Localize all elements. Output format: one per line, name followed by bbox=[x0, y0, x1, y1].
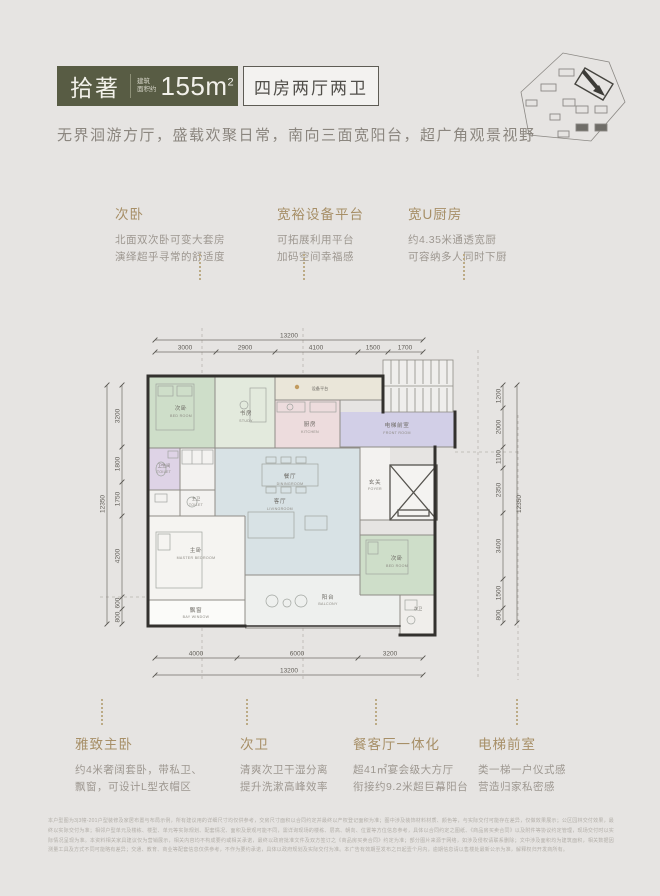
feature-line: 飘窗，可设计L型衣帽区 bbox=[75, 779, 235, 796]
area-superscript: 2 bbox=[228, 76, 235, 88]
dim-right-seg: 2350 bbox=[496, 482, 503, 497]
room-label-bed1-cn: 次卧 bbox=[175, 404, 187, 412]
feature-line: 约4.35米通透宽厨 bbox=[408, 232, 568, 249]
feature-line: 类一梯一户仪式感 bbox=[478, 762, 608, 779]
feature-title: 次卧 bbox=[115, 203, 275, 223]
dim-right-seg: 1100 bbox=[496, 450, 503, 464]
highlighted-building-icon bbox=[575, 68, 613, 100]
room-label-bed1-en: BED ROOM bbox=[170, 414, 192, 418]
dim-right-seg: 3400 bbox=[496, 538, 503, 553]
room-label-study-en: STUDY bbox=[239, 419, 253, 423]
feature-title: 次卫 bbox=[240, 733, 360, 753]
feature-line: 提升洗漱高峰效率 bbox=[240, 779, 360, 796]
feature-title: 电梯前室 bbox=[478, 733, 608, 753]
room-label-bed2-en: BED ROOM bbox=[386, 564, 408, 568]
dim-top-total: 13200 bbox=[280, 333, 298, 340]
site-plan-bold-buildings bbox=[577, 125, 606, 130]
dim-right-total: 12350 bbox=[516, 495, 523, 513]
room-label-study-cn: 书房 bbox=[240, 409, 252, 417]
brand-name: 拾著 bbox=[57, 69, 130, 103]
room-label-balcony-cn: 阳台 bbox=[322, 593, 334, 601]
room-label-toilet1-en: TOILET bbox=[157, 470, 172, 474]
room-label-bay-en: BAY WINDOW bbox=[183, 615, 210, 619]
room-label-master-cn: 主卧 bbox=[190, 546, 202, 554]
dim-left-seg: 1800 bbox=[115, 456, 122, 471]
dotted-connector bbox=[375, 699, 377, 725]
feature-u-kitchen: 宽U厨房 约4.35米通透宽厨 可容纳多人同时下厨 bbox=[408, 203, 568, 266]
dim-top-seg: 1500 bbox=[366, 345, 381, 352]
dim-left-seg: 4200 bbox=[115, 548, 122, 563]
feature-line: 清爽次卫干湿分离 bbox=[240, 762, 360, 779]
room-label-kitchen-en: KITCHEN bbox=[301, 430, 319, 434]
dim-bottom-seg: 6000 bbox=[290, 651, 305, 658]
dotted-connector bbox=[101, 699, 103, 725]
dim-right-seg: 1500 bbox=[496, 585, 503, 600]
room-label-master-en: MASTER BEDROOM bbox=[177, 556, 216, 560]
feature-secondary-bedroom: 次卧 北面双次卧可变大套房 演绎超乎寻常的舒适度 bbox=[115, 203, 275, 266]
dim-right-seg: 800 bbox=[496, 609, 503, 620]
room-label-front-en: FRONT ROOM bbox=[383, 431, 411, 435]
room-label-dining-cn: 餐厅 bbox=[284, 472, 296, 480]
dim-top-seg: 1700 bbox=[398, 345, 413, 352]
room-label-toilet1-cn: 卫生间 bbox=[158, 462, 171, 469]
dim-left-seg: 800 bbox=[115, 611, 122, 622]
dim-left-seg: 600 bbox=[115, 597, 122, 608]
disclaimer-text: 本户型图为3|3幢-201户型装修及家居布置与布局示例，所有建议用的详细尺寸均仅… bbox=[48, 817, 614, 856]
room-label-kitchen-cn: 厨房 bbox=[304, 420, 316, 428]
room-label-mtoilet-en: TOILET bbox=[189, 503, 204, 507]
layout-type-label: 四房两厅两卫 bbox=[254, 74, 368, 99]
feature-master-bedroom: 雅致主卧 约4米奢阔套卧，带私卫、 飘窗，可设计L型衣帽区 bbox=[75, 733, 235, 796]
feature-line: 可容纳多人同时下厨 bbox=[408, 249, 568, 266]
brand-area-box: 拾著 建筑 面积约 155m2 bbox=[57, 66, 238, 106]
room-label-foyer-cn: 玄关 bbox=[369, 478, 381, 486]
feature-line: 演绎超乎寻常的舒适度 bbox=[115, 249, 275, 266]
feature-elevator-lobby: 电梯前室 类一梯一户仪式感 营造归家私密感 bbox=[478, 733, 608, 796]
dim-top-seg: 4100 bbox=[309, 345, 324, 352]
room-label-dining-en: DININGROOM bbox=[277, 482, 304, 486]
room-label-living-cn: 客厅 bbox=[274, 497, 286, 505]
dotted-connector bbox=[516, 699, 518, 725]
dotted-connector bbox=[463, 254, 465, 280]
room-label-mtoilet-cn: 主卫 bbox=[192, 495, 200, 501]
dotted-connector bbox=[303, 254, 305, 280]
area-value: 155m2 bbox=[161, 71, 235, 102]
layout-type-box: 四房两厅两卫 bbox=[243, 66, 379, 106]
dim-bottom-seg: 4000 bbox=[189, 651, 204, 658]
tagline: 无界洄游方厅，盛载欢聚日常，南向三面宽阳台，超广角观景视野 bbox=[57, 124, 536, 145]
feature-second-bath: 次卫 清爽次卫干湿分离 提升洗漱高峰效率 bbox=[240, 733, 360, 796]
room-label-living-en: LIVINGROOM bbox=[267, 507, 293, 511]
dim-left-total: 12350 bbox=[100, 495, 107, 513]
area-prefix-line1: 建筑 bbox=[137, 78, 150, 85]
area-prefix-line2: 面积约 bbox=[137, 86, 157, 93]
dimensions-bottom: 4000 6000 3200 13200 bbox=[153, 651, 426, 678]
site-plan-boundary bbox=[521, 53, 625, 141]
feature-line: 营造归家私密感 bbox=[478, 779, 608, 796]
equipment-platform-dot bbox=[295, 385, 299, 389]
floorplan: 次卧 BED ROOM 书房 STUDY 设备平台 厨房 KITCHEN 电梯前… bbox=[100, 288, 560, 696]
dotted-connector bbox=[199, 254, 201, 280]
dim-bottom-total: 13200 bbox=[280, 668, 298, 675]
feature-line: 北面双次卧可变大套房 bbox=[115, 232, 275, 249]
room-label-foyer-en: FOYER bbox=[368, 487, 382, 491]
room-label-bay-cn: 飘窗 bbox=[190, 606, 202, 614]
room-label-bed2-cn: 次卧 bbox=[391, 554, 403, 562]
dim-left-seg: 3200 bbox=[115, 408, 122, 423]
feature-line: 约4米奢阔套卧，带私卫、 bbox=[75, 762, 235, 779]
feature-title: 宽U厨房 bbox=[408, 203, 568, 223]
room-label-equip: 设备平台 bbox=[312, 385, 329, 392]
dim-right-seg: 2000 bbox=[496, 419, 503, 434]
dotted-connector bbox=[246, 699, 248, 725]
dim-bottom-seg: 3200 bbox=[383, 651, 398, 658]
dim-top-seg: 2900 bbox=[238, 345, 253, 352]
dim-left-seg: 1750 bbox=[115, 491, 122, 506]
dim-right-seg: 1200 bbox=[496, 388, 503, 403]
dimensions-top: 13200 3000 2900 4100 1500 1700 bbox=[153, 333, 426, 355]
dimensions-left: 12350 3200 1800 1750 4200 600 800 bbox=[100, 383, 124, 627]
area-prefix-label: 建筑 面积约 bbox=[131, 78, 161, 94]
dimensions-right: 1200 2000 1100 2350 3400 1500 800 12350 bbox=[496, 383, 524, 626]
room-label-front-cn: 电梯前室 bbox=[385, 421, 410, 429]
room-label-bath2-cn: 次卫 bbox=[414, 605, 422, 612]
feature-title: 雅致主卧 bbox=[75, 733, 235, 753]
dim-top-seg: 3000 bbox=[178, 345, 193, 352]
room-label-balcony-en: BALCONY bbox=[318, 602, 338, 606]
